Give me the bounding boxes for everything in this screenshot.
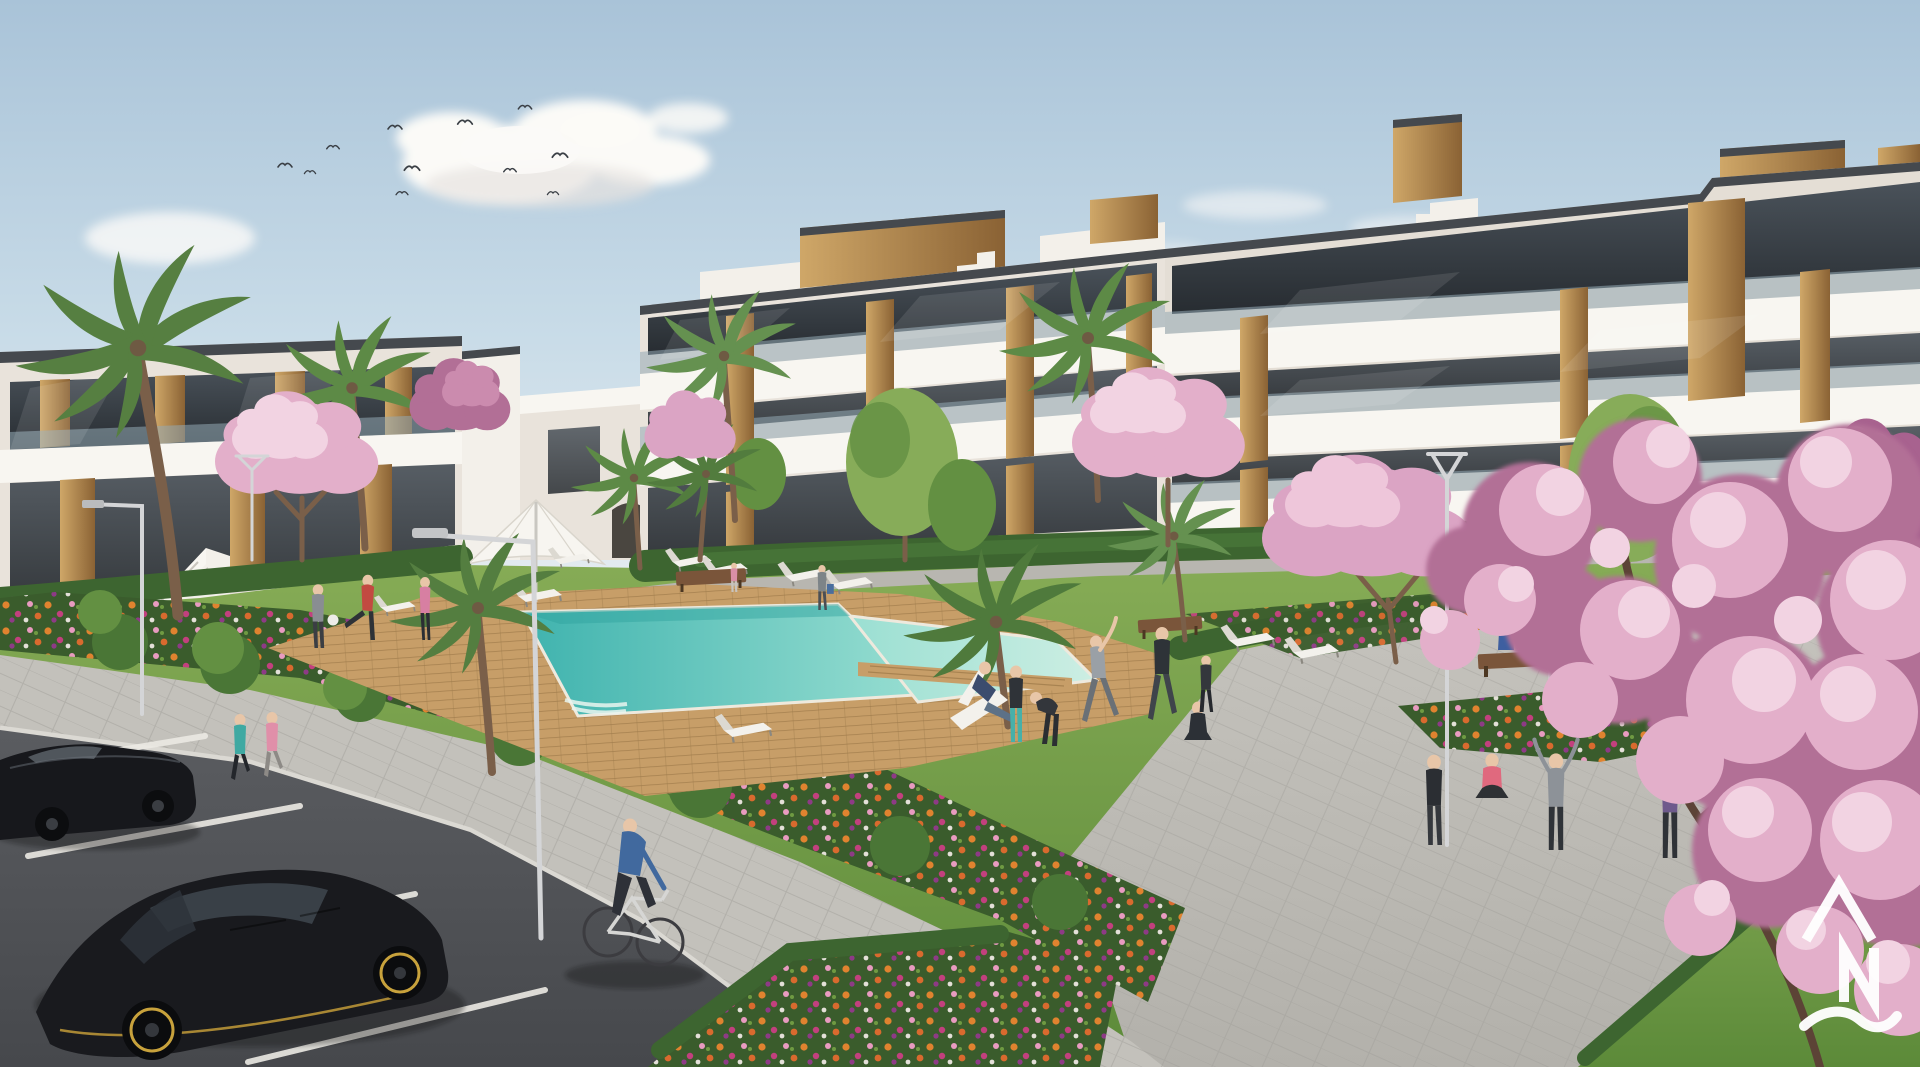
render-stage: New-build residential complex with commu… (0, 0, 1920, 1067)
football (328, 615, 339, 626)
tote-bag (827, 584, 834, 594)
rendering-canvas: New-build residential complex with commu… (0, 0, 1920, 1067)
